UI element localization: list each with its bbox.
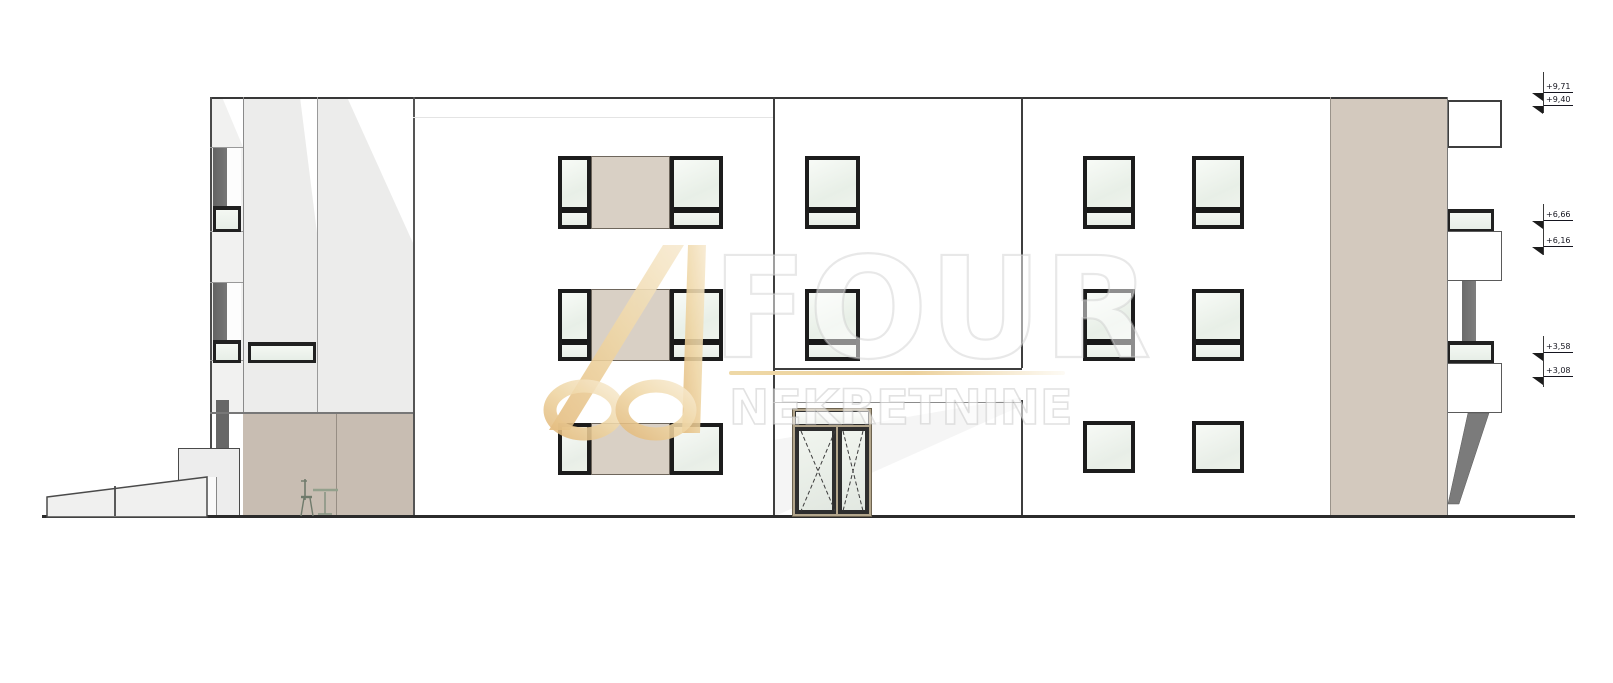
window-glass-upper xyxy=(1196,293,1240,339)
left-wing-sidelight-upper xyxy=(213,206,241,232)
door-leaf-left xyxy=(795,427,836,514)
building-left-edge xyxy=(210,97,212,448)
elevation-label: +3,58 xyxy=(1544,343,1573,353)
window-narrow xyxy=(558,156,591,229)
window xyxy=(1083,156,1135,229)
elevation-arrow-icon xyxy=(1532,221,1543,229)
window-glass-lower xyxy=(674,213,719,225)
elevation-arrow-icon xyxy=(1532,377,1543,385)
watermark-brand-subtext: NEKRETNINE xyxy=(729,384,1073,432)
right-balcony-parapet-low xyxy=(1447,363,1502,413)
elevation-arrow-icon xyxy=(1532,93,1543,101)
door-glass xyxy=(799,431,832,510)
window xyxy=(1083,421,1135,473)
window-glass-lower xyxy=(1196,213,1240,225)
left-wing-panel-a xyxy=(243,97,317,413)
window-glass-upper xyxy=(1196,160,1240,207)
watermark-brand-text: FOUR xyxy=(712,240,1152,380)
window-glass-lower xyxy=(809,213,856,225)
right-glass-railing-lower xyxy=(1447,341,1494,363)
window-glass-lower xyxy=(562,213,587,225)
window-glass-lower xyxy=(1087,213,1131,225)
side-wall-white-strip xyxy=(206,477,217,517)
window xyxy=(1192,156,1244,229)
elevation-drawing-canvas: FOUR NEKRETNINE +9,71 +9,40 +6,66 +6,16 … xyxy=(0,0,1613,683)
railing-glass xyxy=(1450,213,1491,229)
door-glass xyxy=(842,431,865,510)
ground-floor-slab-line xyxy=(210,412,413,414)
right-balcony-parapet-mid xyxy=(1447,231,1502,281)
left-wing-narrow-strip xyxy=(210,97,243,413)
slab-line xyxy=(210,282,243,283)
railing-glass xyxy=(1450,345,1491,360)
window xyxy=(1192,421,1244,473)
window-glass-lower xyxy=(1196,345,1240,357)
glass xyxy=(216,344,238,360)
panel-joint-line xyxy=(317,97,318,413)
elevation-label: +9,40 xyxy=(1544,96,1573,106)
railing-glass xyxy=(251,346,313,360)
window xyxy=(1192,289,1244,361)
elevation-label: +6,66 xyxy=(1544,211,1573,221)
elevation-label: +9,71 xyxy=(1544,83,1573,93)
elevation-arrow-icon xyxy=(1532,106,1543,114)
parapet-faint-line xyxy=(413,117,773,118)
door-leaf-right xyxy=(838,427,869,514)
roof-parapet-line xyxy=(210,97,1447,99)
glass xyxy=(216,210,238,229)
right-glass-railing-upper xyxy=(1447,209,1494,232)
elevation-arrow-icon xyxy=(1532,353,1543,361)
ground-floor-panel-joint xyxy=(336,413,337,517)
elevation-arrow-icon xyxy=(1532,247,1543,255)
window-center xyxy=(805,156,860,229)
balcony-diagonal-support xyxy=(1448,413,1489,504)
left-ground-floor-taupe-wall xyxy=(243,413,413,517)
elevation-label: +3,08 xyxy=(1544,367,1573,377)
window-wide xyxy=(670,156,723,229)
elevation-label: +6,16 xyxy=(1544,237,1573,247)
left-wing-sidelight-lower xyxy=(213,340,241,363)
window-glass-upper xyxy=(809,160,856,207)
window-glass-upper xyxy=(1087,160,1131,207)
facade-accent-panel xyxy=(591,156,670,229)
four-nekretnine-logo xyxy=(520,233,720,448)
window-glass xyxy=(1196,425,1240,469)
window-glass-upper xyxy=(674,160,719,207)
right-taupe-band xyxy=(1330,97,1447,517)
slab-line xyxy=(210,147,243,148)
window-glass xyxy=(1087,425,1131,469)
left-dark-column xyxy=(216,400,229,448)
watermark-gold-rule xyxy=(729,371,1065,375)
facade-section-line xyxy=(413,97,415,517)
door-leaves xyxy=(795,427,869,514)
right-balcony-parapet-top xyxy=(1447,100,1502,148)
balcony-glass-railing xyxy=(248,342,316,363)
window-glass-upper xyxy=(562,160,587,207)
right-dark-column xyxy=(1462,281,1476,343)
taupe-band-edge xyxy=(1330,97,1331,517)
building-right-edge xyxy=(1447,97,1448,517)
panel-joint-line xyxy=(243,97,244,413)
